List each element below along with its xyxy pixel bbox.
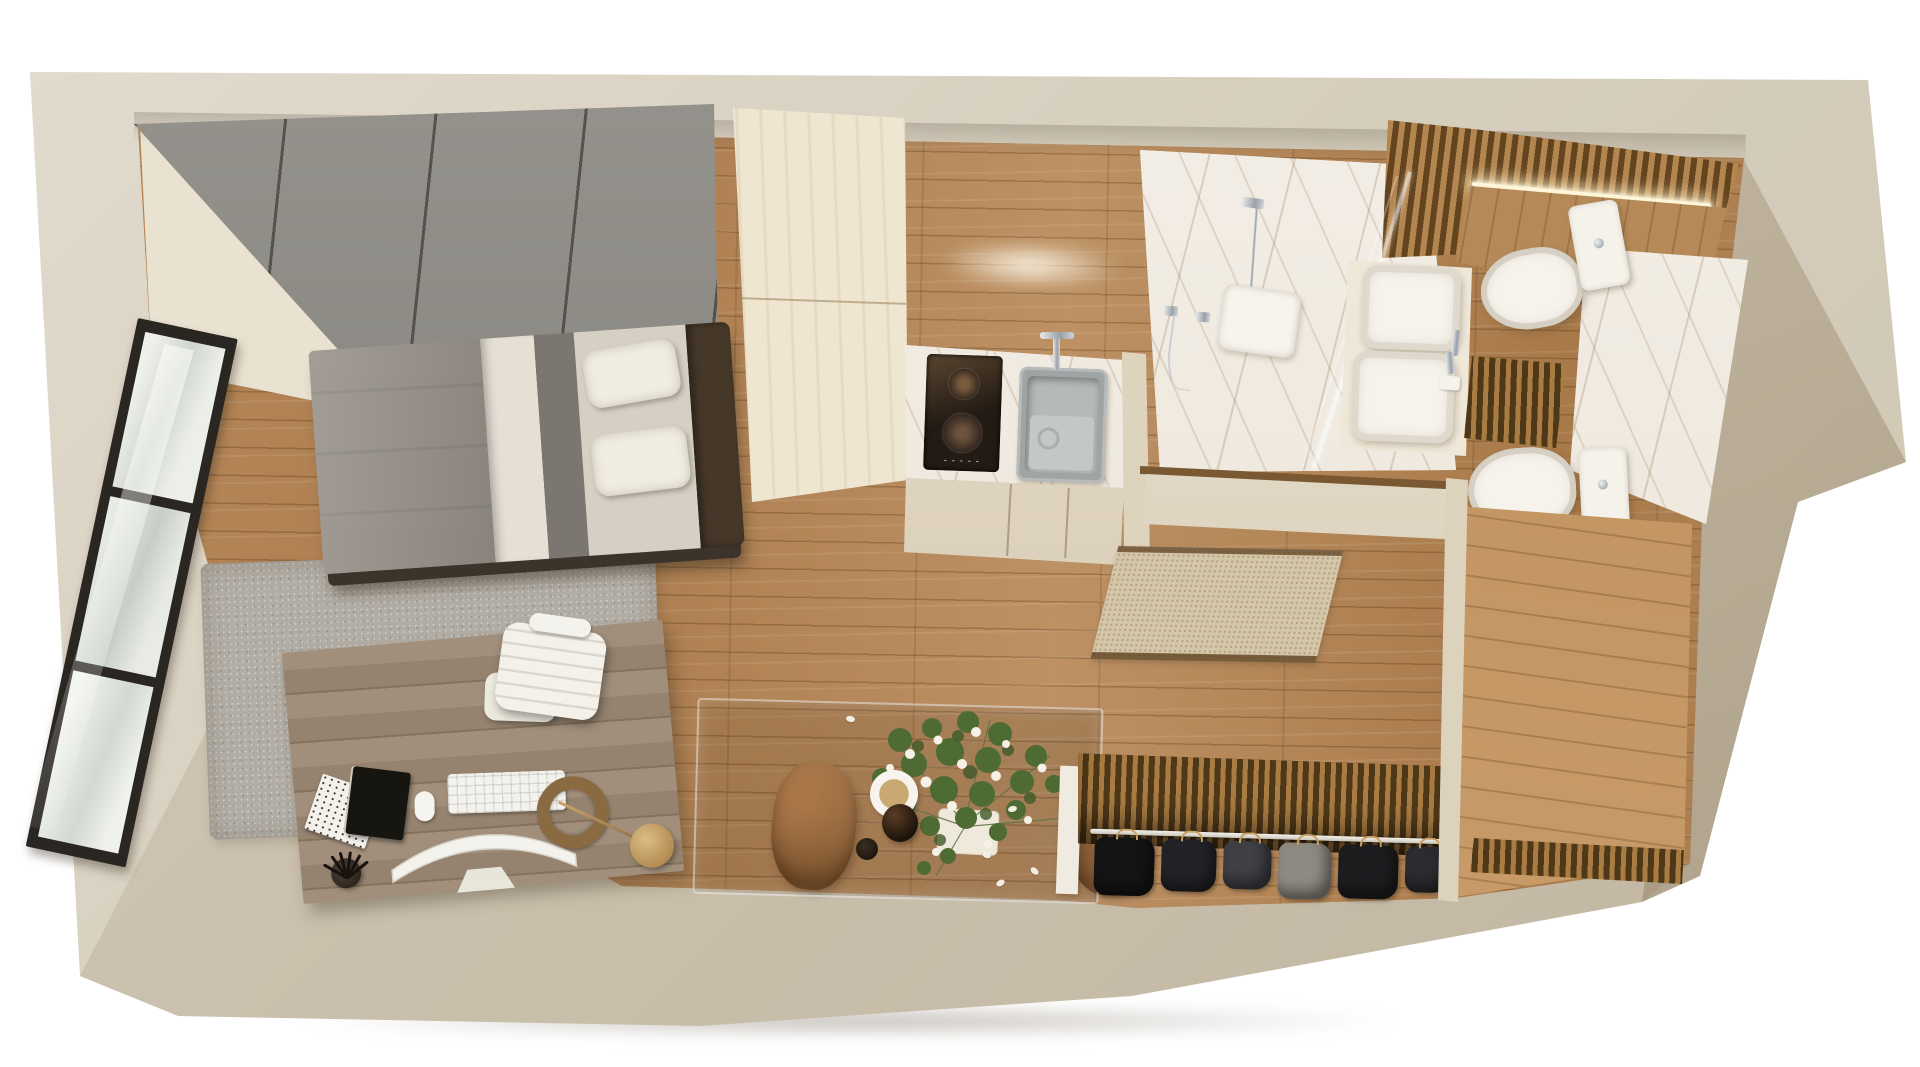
toilet-bowl [1475,240,1589,336]
wash-basin [1361,264,1462,351]
garment [1093,837,1155,897]
wash-basin [1350,350,1455,444]
rain-shower-plate [1216,283,1302,359]
lamp-base [628,822,676,870]
burner [944,364,983,403]
garment [1161,839,1217,893]
pillow [589,424,692,497]
kitchen-sink [1016,366,1108,483]
chair-backrest [493,620,608,722]
soap-dish [1440,375,1461,390]
kitchen-faucet-bar [1040,332,1074,339]
pillow [580,337,683,410]
hanging-clothes [1093,837,1449,911]
bottle [882,804,918,842]
bed-blanket [308,339,495,574]
garment [1278,842,1332,900]
bed [308,322,746,589]
basin-faucet [1445,352,1455,375]
doormat [1090,546,1343,663]
garment [1222,841,1272,890]
kitchen-faucet [1053,336,1060,370]
bed-pillow-zone [574,325,701,556]
office-chair [479,613,633,739]
burner [937,408,987,458]
cooktop-controls [941,458,983,463]
lamp-head [534,773,612,851]
cooktop [923,354,1003,473]
under-cabinet-glow [917,234,1141,296]
floorplan-render [0,0,1920,1067]
small-cup [856,838,878,860]
garment [1337,844,1399,900]
